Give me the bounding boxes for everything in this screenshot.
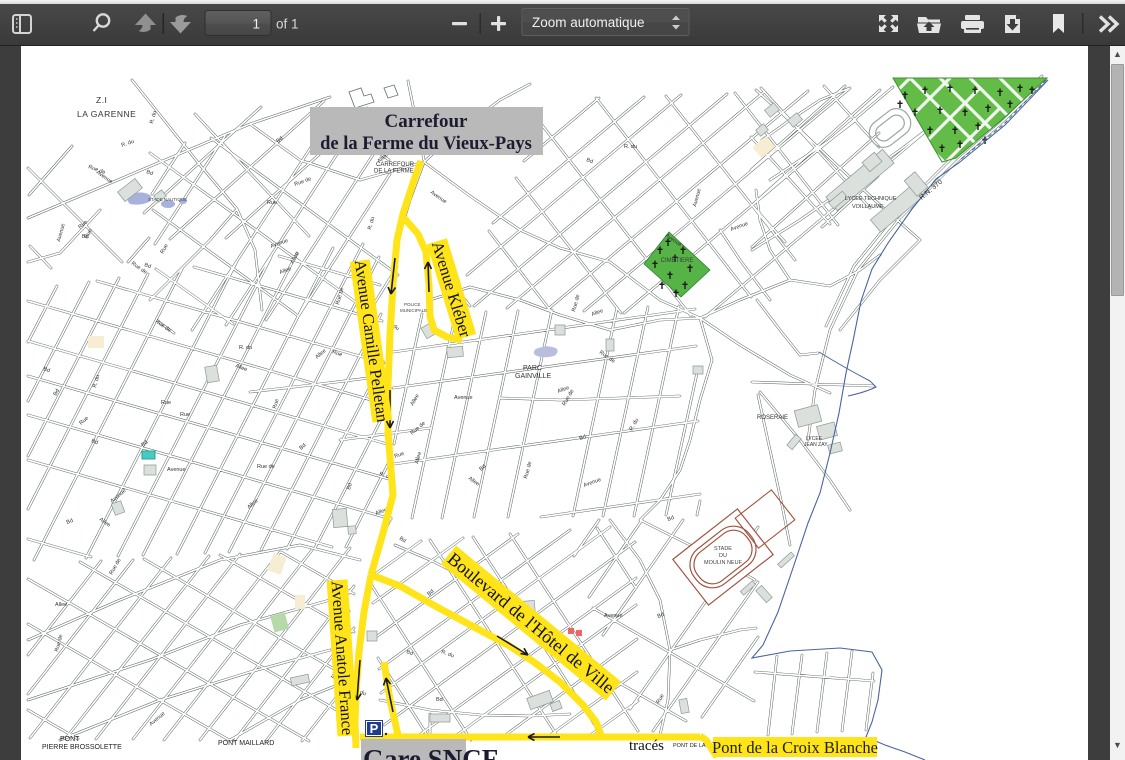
svg-text:Allee: Allee	[314, 348, 327, 360]
svg-text:LA GARENNE: LA GARENNE	[77, 109, 136, 119]
svg-text:Rue de: Rue de	[523, 461, 533, 480]
svg-text:Allee: Allee	[246, 498, 259, 510]
svg-text:R. du: R. du	[121, 139, 135, 149]
svg-text:Rue de: Rue de	[294, 176, 313, 188]
svg-text:Bd: Bd	[346, 482, 354, 490]
svg-text:Rue de: Rue de	[571, 294, 581, 313]
svg-text:P: P	[370, 721, 379, 736]
svg-text:DU: DU	[719, 553, 727, 559]
svg-text:MOULIN NEUF: MOULIN NEUF	[704, 560, 743, 566]
svg-text:MUNICIPALE: MUNICIPALE	[400, 308, 427, 313]
svg-text:Allee: Allee	[591, 308, 605, 318]
svg-text:Allee: Allee	[414, 451, 423, 464]
svg-text:PONT: PONT	[60, 736, 80, 743]
svg-text:R. du: R. du	[440, 649, 454, 659]
svg-text:STADE: STADE	[714, 546, 732, 552]
svg-text:Allee: Allee	[98, 517, 111, 529]
svg-text:1: 1	[252, 17, 260, 32]
svg-text:Avenue: Avenue	[692, 188, 703, 207]
svg-text:Allee: Allee	[55, 602, 67, 608]
svg-text:Avenue: Avenue	[167, 467, 186, 473]
svg-text:Z.I: Z.I	[96, 95, 107, 105]
svg-text:Rue: Rue	[394, 451, 406, 460]
svg-text:Bd: Bd	[405, 649, 413, 657]
svg-text:POLICE: POLICE	[404, 302, 421, 307]
svg-text:of 1: of 1	[276, 17, 299, 32]
svg-text:Carrefour: Carrefour	[384, 111, 468, 132]
svg-text:Avenue: Avenue	[148, 711, 166, 728]
svg-text:Avenue: Avenue	[429, 190, 448, 206]
svg-text:PIERRE BROSSOLETTE: PIERRE BROSSOLETTE	[42, 744, 122, 751]
svg-text:Rue de: Rue de	[257, 464, 275, 470]
svg-text:CARREFOUR: CARREFOUR	[376, 162, 415, 168]
svg-text:DE LA FERME: DE LA FERME	[374, 169, 414, 175]
svg-text:Rue de: Rue de	[154, 319, 172, 334]
svg-text:Avenue: Avenue	[454, 395, 473, 401]
svg-text:R. du: R. du	[367, 216, 376, 230]
svg-text:Bd: Bd	[398, 536, 407, 545]
svg-text:Bd: Bd	[298, 443, 307, 452]
svg-text:Rue: Rue	[78, 415, 90, 426]
svg-text:Rue: Rue	[160, 243, 170, 255]
svg-text:Rue: Rue	[180, 412, 190, 418]
svg-text:Avenue: Avenue	[56, 223, 67, 242]
svg-text:Bd: Bd	[585, 157, 593, 165]
svg-text:R. du: R. du	[149, 110, 158, 124]
svg-text:STADE NAUTIQUE: STADE NAUTIQUE	[148, 197, 187, 202]
svg-text:R. du: R. du	[239, 345, 252, 351]
svg-text:R. du: R. du	[92, 374, 101, 388]
svg-text:Bd: Bd	[579, 434, 587, 442]
svg-text:LYCEE TECHNIQUE: LYCEE TECHNIQUE	[845, 196, 897, 202]
svg-text:PONT DE LA: PONT DE LA	[673, 743, 706, 749]
svg-text:Pont de la Croix Blanche: Pont de la Croix Blanche	[712, 738, 878, 757]
svg-text:Gare SNCF: Gare SNCF	[363, 744, 498, 760]
svg-text:VOILLAUME: VOILLAUME	[852, 204, 884, 210]
svg-text:Bd: Bd	[145, 169, 153, 177]
svg-text:PARC: PARC	[523, 365, 542, 372]
svg-text:Allee: Allee	[467, 476, 480, 488]
svg-text:Bd: Bd	[66, 518, 74, 526]
svg-text:PONT MAILLARD: PONT MAILLARD	[218, 740, 274, 747]
svg-text:Rue: Rue	[161, 400, 171, 406]
svg-text:tracés: tracés	[629, 738, 664, 754]
svg-text:R. du: R. du	[624, 144, 637, 150]
svg-text:Rue: Rue	[656, 693, 666, 705]
svg-text:Avenue: Avenue	[604, 613, 623, 619]
svg-text:Rue de: Rue de	[109, 558, 123, 576]
svg-text:Avenue: Avenue	[583, 477, 602, 489]
svg-text:Rue: Rue	[84, 228, 94, 240]
svg-text:Rue: Rue	[267, 200, 277, 206]
svg-text:Bd: Bd	[436, 697, 443, 703]
svg-text:CIMETIERE: CIMETIERE	[661, 258, 694, 264]
svg-text:de la Ferme du Vieux-Pays: de la Ferme du Vieux-Pays	[320, 134, 532, 154]
svg-text:GAINVILLE: GAINVILLE	[515, 373, 552, 380]
svg-text:Allee: Allee	[410, 393, 421, 407]
svg-text:ROSERAIE: ROSERAIE	[757, 415, 788, 421]
svg-text:JEAN ZAY: JEAN ZAY	[804, 442, 828, 448]
svg-text:Bd: Bd	[667, 515, 675, 523]
svg-text:Zoom automatique: Zoom automatique	[532, 15, 645, 30]
